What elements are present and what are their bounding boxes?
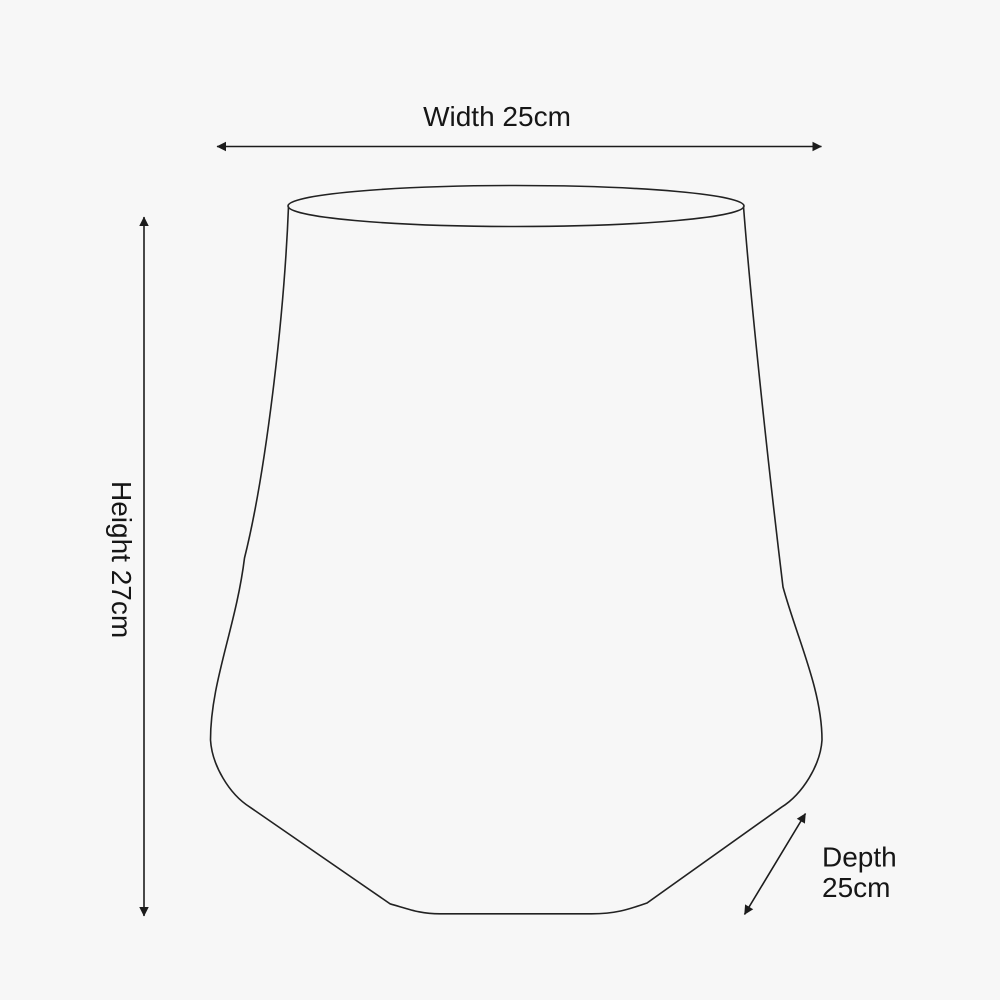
svg-text:Depth: Depth xyxy=(822,842,897,873)
svg-text:Height 27cm: Height 27cm xyxy=(106,481,137,638)
svg-text:25cm: 25cm xyxy=(822,872,890,903)
svg-text:Width 25cm: Width 25cm xyxy=(423,101,571,132)
